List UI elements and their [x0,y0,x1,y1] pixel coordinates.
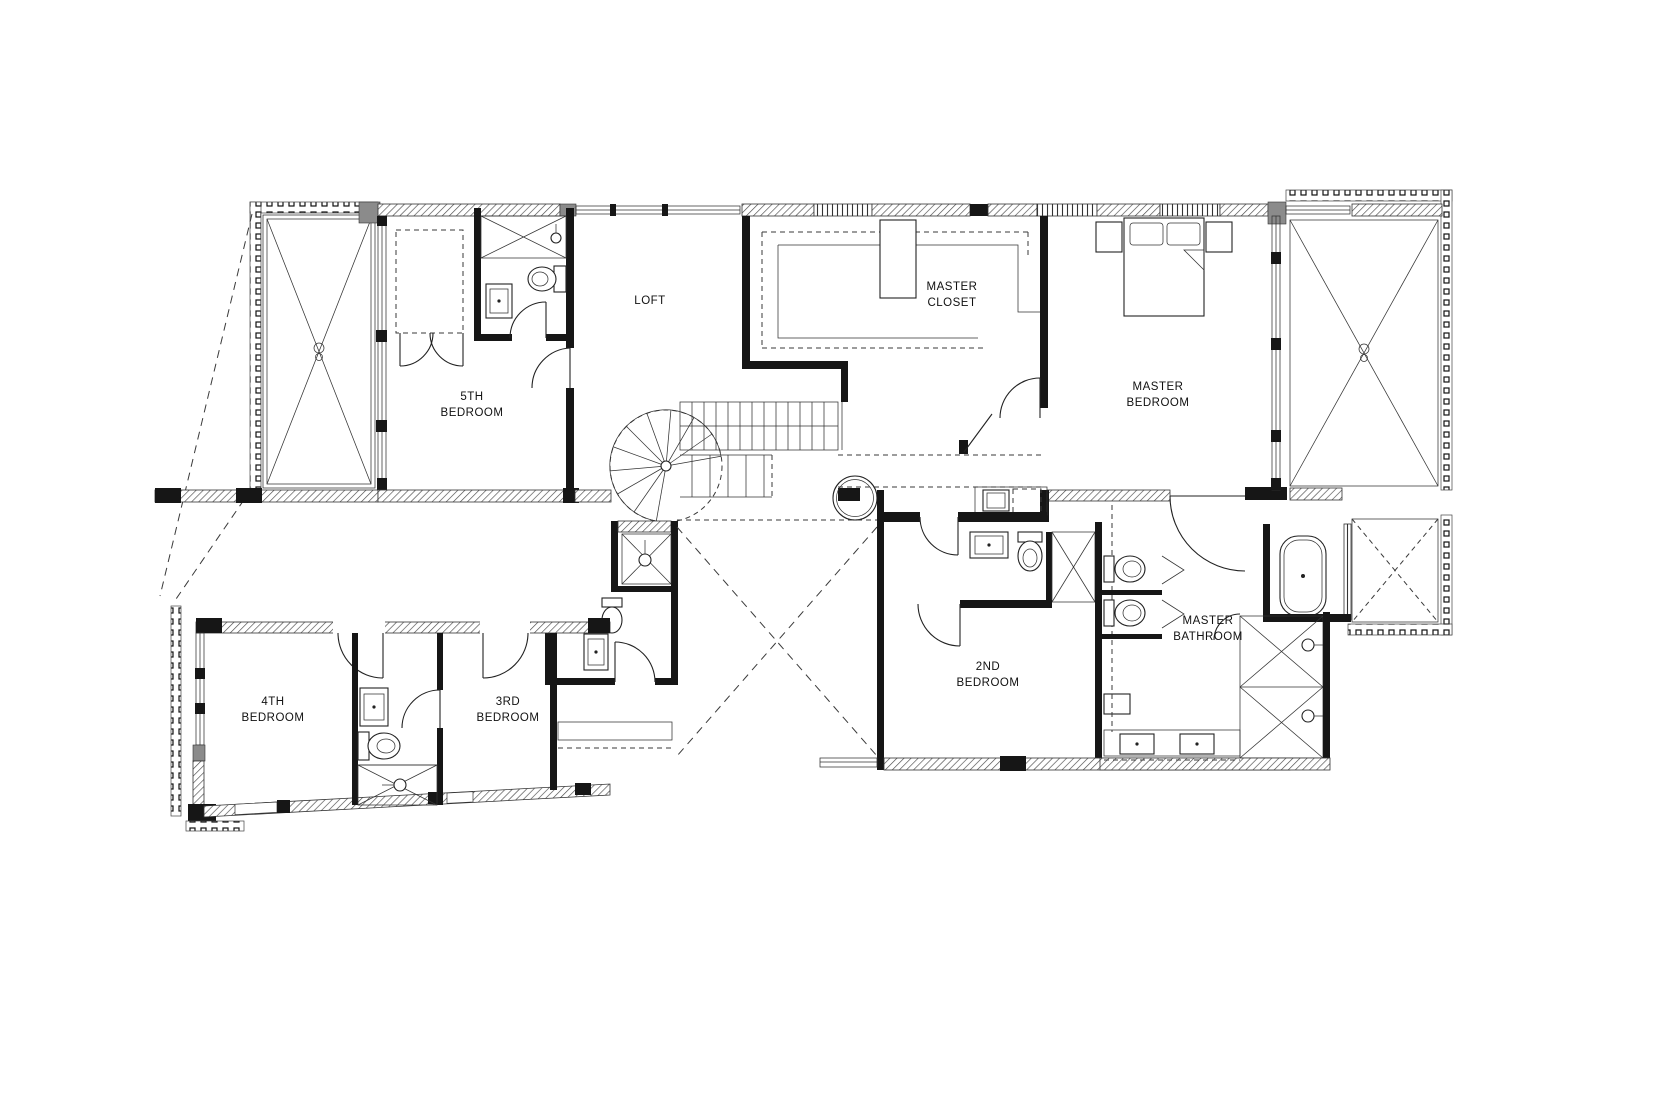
label-4th-bedroom-line1: 4TH [261,696,284,708]
toilet-icon [358,732,400,760]
floor-plan: 5TH BEDROOM LOFT MASTER CLOSET MASTER BE… [0,0,1662,1108]
bathroom-shared [352,633,443,805]
room-master-closet [742,216,1040,402]
closet-5th-bedroom [396,230,463,366]
shower-icon [622,534,671,584]
label-4th-bedroom-line2: BEDROOM [242,712,305,724]
label-master-closet-line1: MASTER [927,281,978,293]
label-master-bathroom-line2: BATHROOM [1173,631,1243,643]
deck-left [250,202,380,490]
toilet-icon [1104,556,1145,582]
door-2nd-bedroom [918,604,960,646]
door-5th-bedroom [532,348,570,388]
sink-icon [584,634,608,670]
property-line [160,214,252,596]
shower-icon [1052,532,1095,602]
door-master-bathroom [1170,496,1245,571]
toilet-icon [528,266,566,292]
bathroom-5th [474,208,574,341]
door-shared-bath [402,690,440,728]
sink-icon [360,688,388,726]
bathtub-icon [1263,524,1326,616]
label-3rd-bedroom-line1: 3RD [496,696,521,708]
bed-icon [1096,218,1232,316]
open-to-below [677,490,884,770]
sink-icon [970,532,1008,558]
label-master-bathroom-line1: MASTER [1183,615,1234,627]
cabinet-icon [558,722,672,740]
hallway [838,414,1047,515]
label-5th-bedroom-line1: 5TH [460,391,483,403]
staircase-icon [680,402,842,497]
toilet-icon [1018,532,1042,571]
appliance-icon [1013,489,1041,513]
label-2nd-bedroom-line1: 2ND [976,661,1001,673]
door-master-suite [964,414,992,452]
spiral-staircase-icon [610,410,722,522]
label-5th-bedroom-line2: BEDROOM [441,407,504,419]
laundry-sink-icon [983,490,1009,511]
door-2nd-bedroom-hall [920,517,958,555]
wardrobe-icon [880,220,916,298]
door-4th-bedroom [338,633,383,678]
label-master-bedroom-line1: MASTER [1133,381,1184,393]
toilet-icon [1104,600,1145,626]
lower-left-block [171,606,610,831]
shower-icon [481,216,566,258]
floorplan-canvas: 5TH BEDROOM LOFT MASTER CLOSET MASTER BE… [0,0,1662,1108]
label-3rd-bedroom-line2: BEDROOM [477,712,540,724]
sink-icon [486,284,512,318]
label-2nd-bedroom-line2: BEDROOM [957,677,1020,689]
bathroom-center [545,521,678,748]
label-master-bedroom-line2: BEDROOM [1127,397,1190,409]
room-master-bedroom [1000,216,1281,490]
cabinet-icon [1104,694,1130,714]
door-master-closet [1000,378,1040,418]
door-bath5 [510,302,546,338]
label-master-closet-line2: CLOSET [927,297,976,309]
property-line-2 [174,488,252,602]
door-3rd-bedroom [483,633,528,678]
door-powder [615,642,655,682]
vanity-icon [1104,730,1240,760]
label-loft: LOFT [634,295,665,307]
deck-small [1348,515,1452,635]
